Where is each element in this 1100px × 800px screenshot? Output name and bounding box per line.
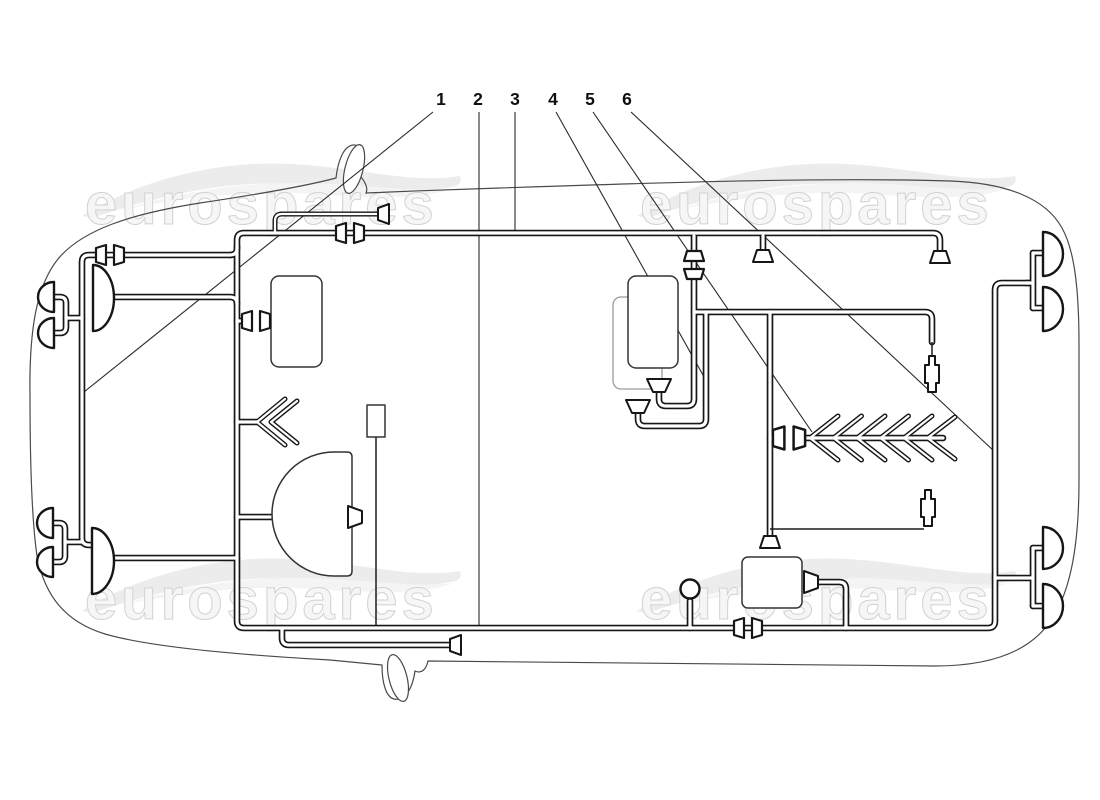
ecu-connector-1 (647, 379, 671, 392)
horn-connector (348, 506, 362, 528)
top-mid-drop-terminal (753, 250, 773, 262)
top-right-drop-terminal (930, 251, 950, 263)
plug-sensor-top (925, 356, 939, 392)
wiring-diagram-canvas: eurospares eurospares eurospares eurospa… (0, 0, 1100, 800)
watermark-bottom-left: eurospares (82, 558, 461, 632)
headlight-left-outer (93, 265, 114, 331)
callout-5: 5 (585, 89, 595, 109)
ecu-box-front (628, 276, 678, 368)
connector-fuse-box (242, 311, 270, 331)
horn-dome (272, 452, 352, 576)
callout-6: 6 (622, 89, 632, 109)
antenna-terminal (378, 204, 389, 224)
callout-3: 3 (510, 89, 520, 109)
parts-diagram-page: eurospares eurospares eurospares eurospa… (0, 0, 1100, 800)
bottom-stub-terminal (450, 635, 461, 655)
watermark-text: eurospares (85, 567, 438, 632)
fuse-box (271, 276, 322, 367)
ecu-connector-2 (626, 400, 650, 413)
engine-top-terminal (760, 536, 780, 548)
engine-unit-box (742, 557, 802, 608)
tail-lamp-4 (1043, 584, 1063, 628)
front-lamp-small-2 (38, 318, 54, 348)
front-lamp-small-3 (37, 508, 53, 538)
tail-lamp-3 (1043, 527, 1063, 569)
callout-4: 4 (548, 89, 558, 109)
front-lamp-small-4 (37, 547, 53, 577)
callout-1: 1 (436, 89, 446, 109)
side-mirror-bottom (383, 653, 412, 704)
callout-2: 2 (473, 89, 483, 109)
small-connector-block (367, 405, 385, 437)
leader-line-6 (631, 112, 995, 452)
tail-lamp-2 (1043, 287, 1063, 331)
plug-sensor-bottom (921, 490, 935, 526)
watermark-top-right: eurospares (637, 163, 1016, 237)
callout-numbers: 1 2 3 4 5 6 (436, 89, 632, 109)
connector-injection-harness (773, 427, 805, 450)
front-lamp-small-1 (38, 282, 54, 312)
round-sensor (681, 580, 700, 599)
engine-box-connector (804, 571, 818, 593)
tail-lamp-1 (1043, 232, 1063, 276)
watermark-top-left: eurospares (82, 163, 461, 237)
